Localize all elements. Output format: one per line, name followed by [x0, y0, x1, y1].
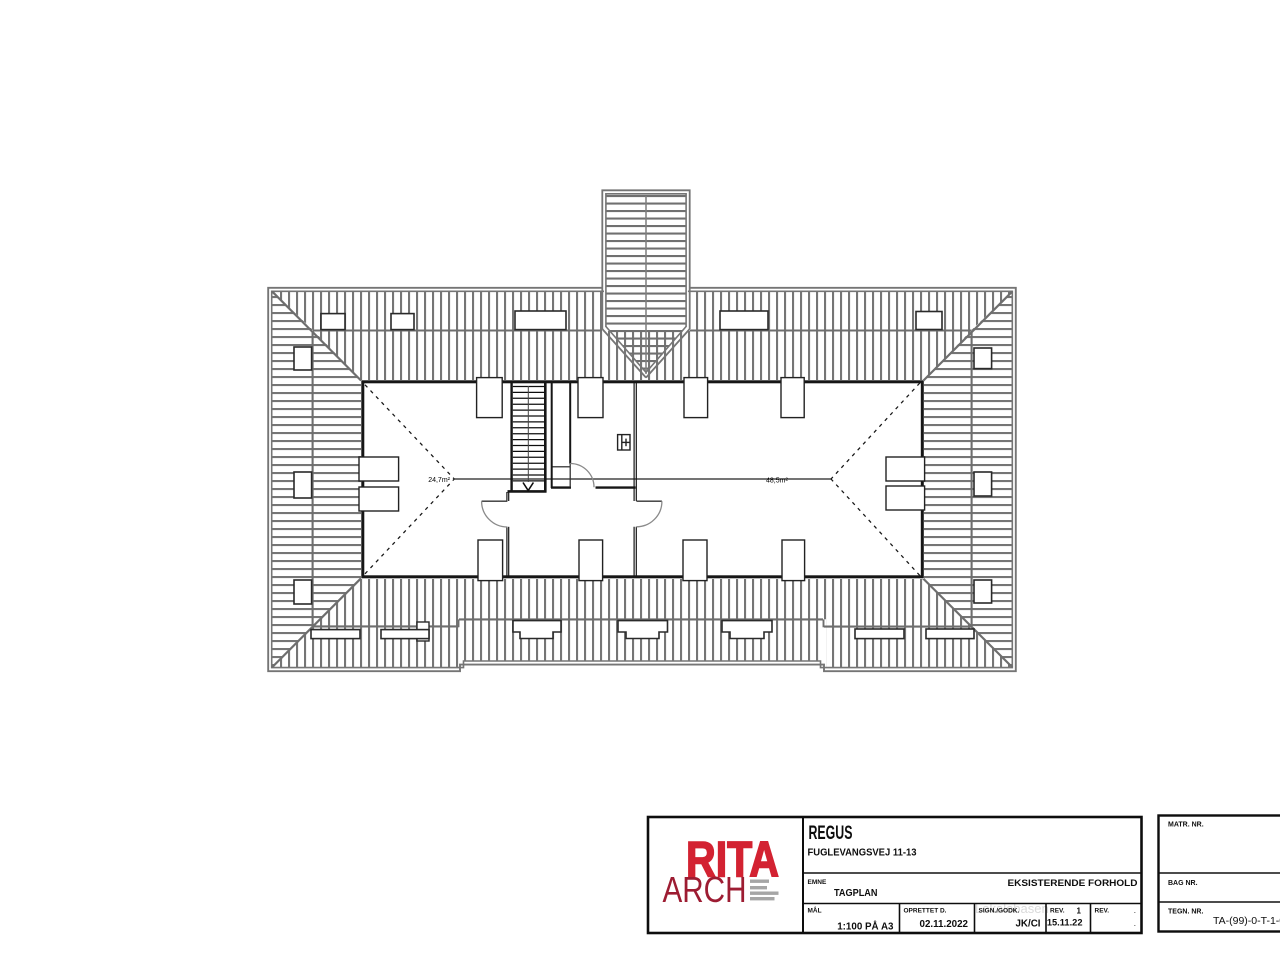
svg-text:JK/CI: JK/CI: [1015, 919, 1040, 930]
svg-text:EMNE: EMNE: [808, 879, 827, 886]
svg-text:02.11.2022: 02.11.2022: [920, 919, 969, 930]
svg-text:REV.: REV.: [1050, 908, 1065, 915]
svg-text:BAG NR.: BAG NR.: [1168, 880, 1198, 887]
svg-text:OPRETTET D.: OPRETTET D.: [904, 908, 947, 915]
svg-text:TA-(99)-0-T-1-01: TA-(99)-0-T-1-01: [1213, 915, 1280, 927]
svg-text:.: .: [1134, 919, 1136, 928]
svg-text:REV.: REV.: [1095, 908, 1110, 915]
svg-text:ARCH: ARCH: [663, 869, 747, 910]
svg-text:15.11.22: 15.11.22: [1047, 918, 1083, 928]
svg-text:REGUS: REGUS: [809, 823, 853, 844]
svg-text:MATR. NR.: MATR. NR.: [1168, 822, 1204, 829]
svg-text:1: 1: [1077, 907, 1082, 916]
svg-text:TAGPLAN: TAGPLAN: [834, 887, 878, 899]
svg-text:MÅL: MÅL: [808, 906, 822, 915]
svg-text:1:100 PÅ A3: 1:100 PÅ A3: [837, 922, 894, 933]
svg-text:48,5m²: 48,5m²: [766, 478, 788, 485]
svg-text:24,7m²: 24,7m²: [428, 477, 450, 484]
svg-text:EKSISTERENDE FORHOLD: EKSISTERENDE FORHOLD: [1008, 878, 1138, 888]
svg-text:SIGN./GODK.: SIGN./GODK.: [979, 908, 1020, 915]
svg-text:.: .: [1134, 906, 1136, 915]
svg-text:TEGN. NR.: TEGN. NR.: [1168, 909, 1203, 916]
svg-text:FUGLEVANGSVEJ 11-13: FUGLEVANGSVEJ 11-13: [808, 848, 917, 859]
